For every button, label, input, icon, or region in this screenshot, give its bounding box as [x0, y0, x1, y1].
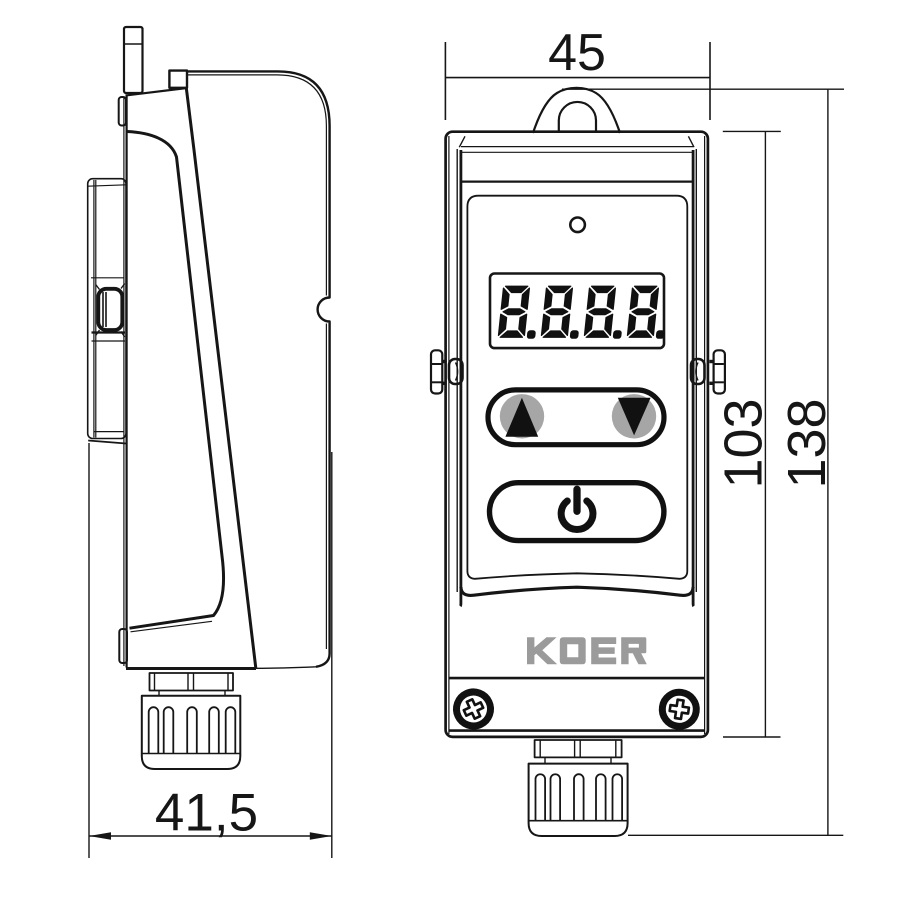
- svg-text:138: 138: [777, 398, 837, 488]
- svg-text:103: 103: [714, 398, 774, 488]
- svg-text:41,5: 41,5: [155, 784, 258, 843]
- svg-text:45: 45: [548, 24, 606, 82]
